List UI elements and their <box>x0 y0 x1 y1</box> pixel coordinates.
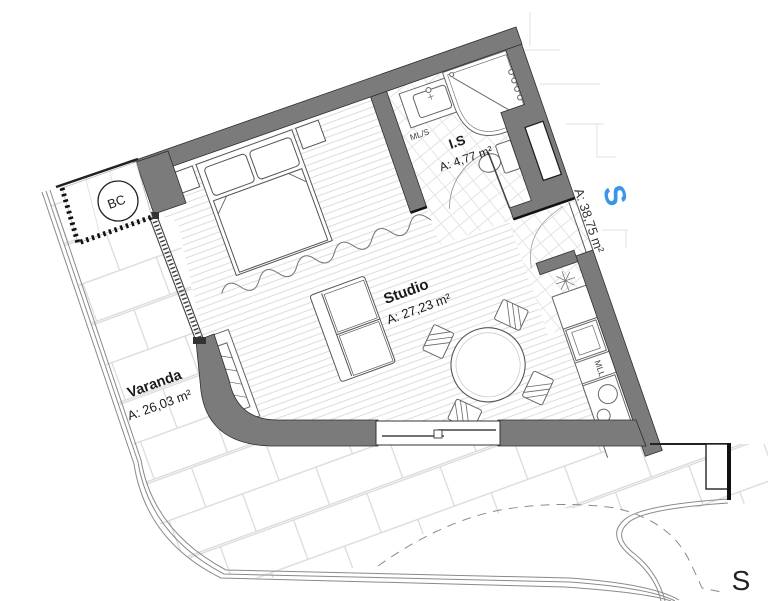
door-handle <box>434 430 442 438</box>
floor-plan-drawing: Studio A: 27,23 m² <box>0 0 768 601</box>
sliding-door <box>376 421 500 445</box>
bottom-wall <box>498 420 646 446</box>
column <box>706 444 728 489</box>
section-s-label: S <box>732 565 751 596</box>
floor-plan-page: Studio A: 27,23 m² <box>0 0 768 601</box>
orientation-s-blue-label: S <box>596 182 633 210</box>
